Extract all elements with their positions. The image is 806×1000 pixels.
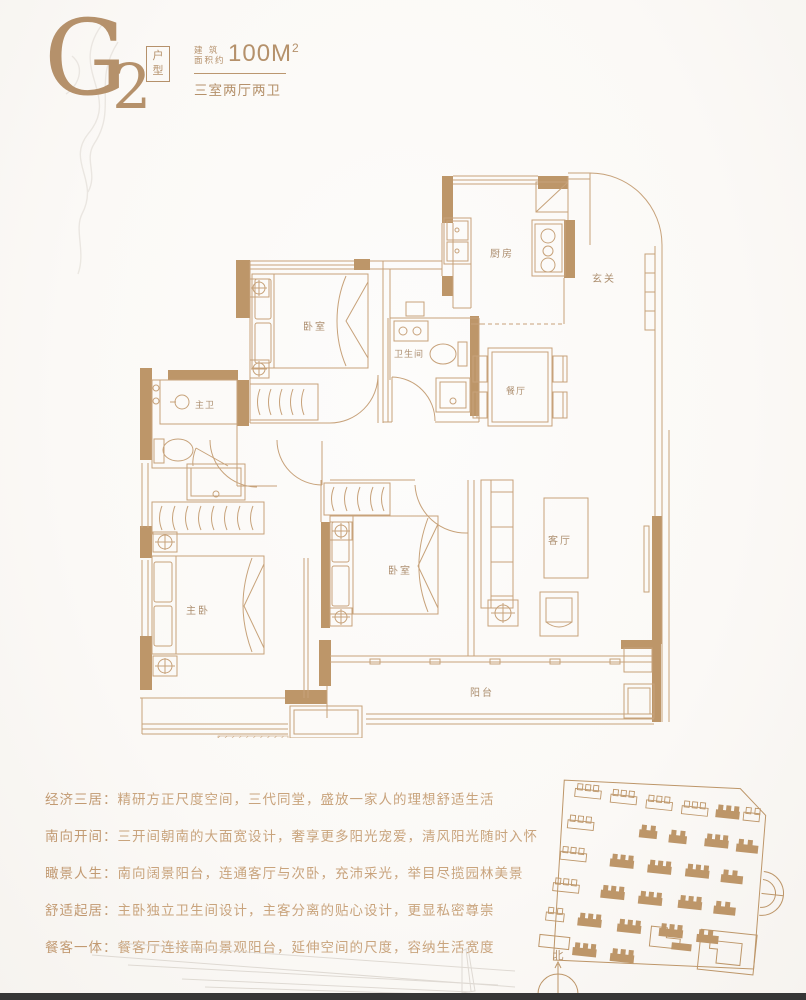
area-prefix-label: 建 筑 面积约 — [194, 45, 226, 65]
unit-type-box: 户 型 — [146, 46, 170, 82]
feature-text: 主卧独立卫生间设计，主客分离的贴心设计，更显私密尊崇 — [118, 903, 495, 918]
bathroom: 卫生间 — [383, 318, 479, 422]
dining-area: 餐厅 — [473, 348, 567, 426]
site-building — [647, 859, 672, 874]
dining-label: 餐厅 — [506, 385, 526, 396]
site-building — [704, 833, 729, 848]
floor-plan: 卧室 卫生间 — [140, 158, 700, 738]
bedroom-south: 卧室 — [321, 480, 474, 656]
kitchen: 厨房 — [442, 176, 568, 324]
compass-north-label: 北 — [553, 949, 564, 962]
site-building — [678, 895, 703, 910]
area-number: 100M — [228, 40, 292, 67]
site-building — [685, 863, 710, 878]
bedroom-north-label: 卧室 — [303, 320, 327, 333]
feature-row: 经济三居：精研方正尺度空间，三代同堂，盛放一家人的理想舒适生活 — [45, 788, 538, 825]
bedroom-north: 卧室 — [250, 261, 442, 423]
site-building — [610, 853, 635, 868]
feature-label: 舒适起居： — [45, 903, 118, 918]
site-building — [617, 919, 642, 934]
master-bath-label: 主卫 — [195, 399, 215, 410]
layout-summary: 三室两厅两卫 — [194, 79, 281, 99]
feature-text: 三开间朝南的大面宽设计，奢享更多阳光宠爱，清风阳光随时入怀 — [118, 829, 539, 844]
site-building — [715, 804, 740, 819]
site-building — [639, 824, 658, 839]
area-superscript: 2 — [292, 41, 300, 55]
column-marker-icon — [330, 608, 352, 626]
wall-segments — [140, 176, 662, 722]
feature-text: 精研方正尺度空间，三代同堂，盛放一家人的理想舒适生活 — [118, 792, 495, 807]
site-building — [610, 789, 637, 805]
bottom-divider-bar — [0, 993, 806, 1000]
column-marker-icon — [153, 532, 177, 552]
area-value: 100M2 — [228, 40, 300, 68]
site-building — [610, 948, 635, 963]
site-building — [638, 891, 663, 906]
feature-row: 舒适起居：主卧独立卫生间设计，主客分离的贴心设计，更显私密尊崇 — [45, 899, 538, 936]
site-building — [560, 846, 587, 862]
bathroom-label: 卫生间 — [394, 348, 424, 359]
bedroom-south-label: 卧室 — [388, 564, 412, 577]
area-prefix-line2: 面积约 — [194, 55, 226, 65]
column-marker-icon — [250, 279, 269, 297]
site-building — [743, 807, 760, 822]
sketch-decoration — [0, 935, 520, 997]
site-building — [553, 878, 580, 894]
master-bath: 主卫 — [152, 380, 237, 468]
feature-label: 瞰景人生： — [45, 866, 118, 881]
site-building — [659, 923, 684, 938]
site-building — [736, 839, 759, 854]
column-marker-icon — [153, 656, 177, 676]
kitchen-label: 厨房 — [490, 247, 514, 260]
balcony-label: 阳台 — [470, 686, 494, 699]
living-room: 客厅 — [481, 480, 649, 636]
unit-type-box-char2: 型 — [147, 64, 169, 79]
site-building — [567, 815, 594, 831]
site-building — [577, 912, 602, 927]
unit-type-box-char1: 户 — [147, 49, 169, 64]
site-building — [646, 795, 673, 811]
site-building — [681, 801, 708, 817]
site-building — [600, 885, 625, 900]
header-divider — [194, 73, 286, 74]
feature-text: 南向阔景阳台，连通客厅与次卧，充沛采光，举目尽揽园林美景 — [118, 866, 524, 881]
site-building — [575, 783, 602, 799]
compass-icon: 北 — [526, 946, 590, 1000]
site-building — [720, 869, 743, 884]
hallway — [210, 426, 322, 487]
living-room-label: 客厅 — [548, 534, 572, 547]
balcony: 阳台 — [327, 648, 654, 724]
feature-row: 瞰景人生：南向阔景阳台，连通客厅与次卧，充沛采光，举目尽揽园林美景 — [45, 862, 538, 899]
site-building — [713, 901, 736, 916]
feature-row: 南向开间：三开间朝南的大面宽设计，奢享更多阳光宠爱，清风阳光随时入怀 — [45, 825, 538, 862]
site-building — [546, 907, 565, 922]
area-prefix-line1: 建 筑 — [194, 45, 226, 55]
site-building — [668, 829, 687, 844]
poster-page: G 2 户 型 建 筑 面积约 100M2 三室两厅两卫 — [0, 0, 806, 1000]
feature-label: 南向开间： — [45, 829, 118, 844]
foyer-label: 玄关 — [592, 272, 616, 285]
master-bedroom-label: 主卧 — [186, 604, 210, 617]
site-round-plaza — [759, 872, 785, 918]
feature-label: 经济三居： — [45, 792, 118, 807]
